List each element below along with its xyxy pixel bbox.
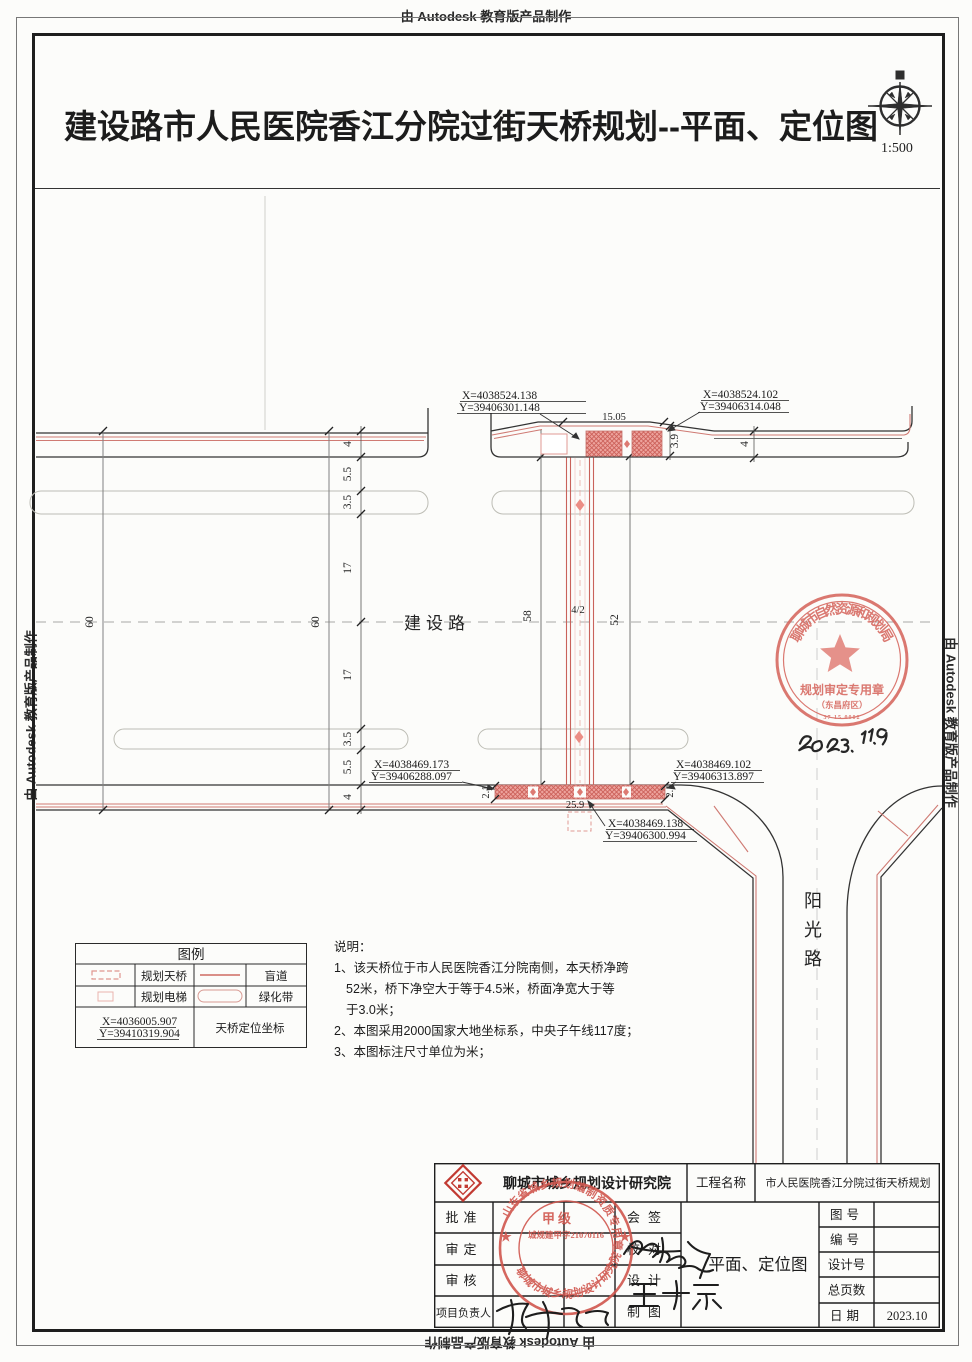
svg-text:乡: 乡 xyxy=(538,1177,552,1192)
svg-text:（东昌府区）: （东昌府区） xyxy=(816,700,867,710)
svg-text:甲级: 甲级 xyxy=(542,1211,574,1226)
svg-text:章: 章 xyxy=(611,1239,625,1250)
svg-text:37 15 0002: 37 15 0002 xyxy=(824,715,861,721)
svg-text:规: 规 xyxy=(551,1175,563,1190)
svg-text:规划审定专用章: 规划审定专用章 xyxy=(800,682,884,697)
svg-text:★: ★ xyxy=(500,1229,512,1244)
svg-text:城规建甲字21070116: 城规建甲字21070116 xyxy=(528,1230,604,1240)
